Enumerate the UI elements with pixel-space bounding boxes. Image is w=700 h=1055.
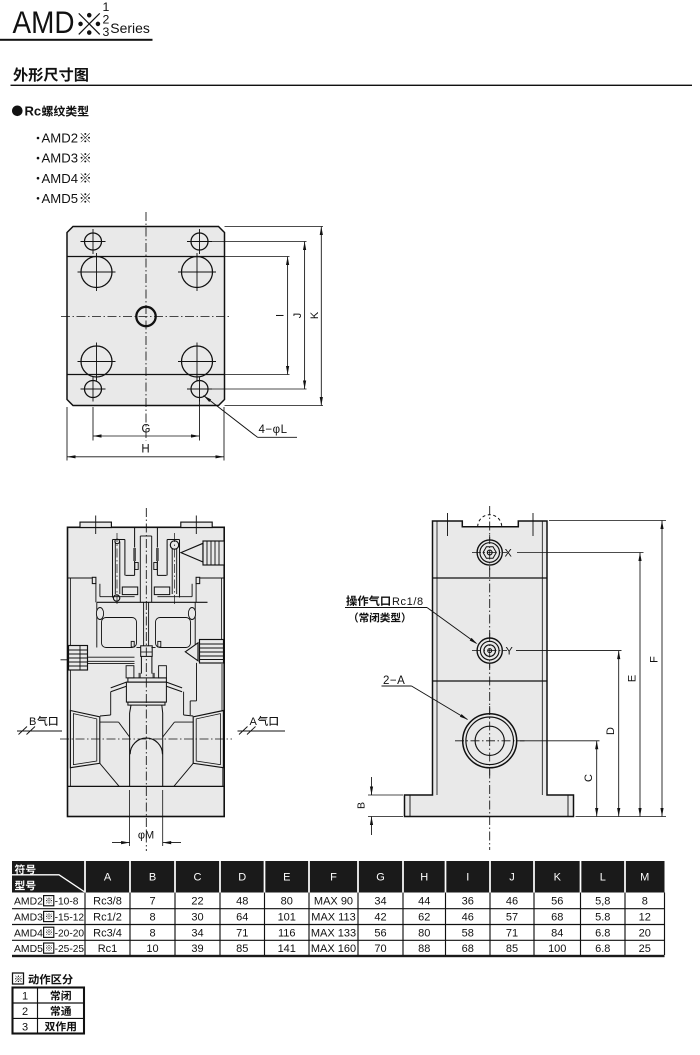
svg-text:B: B [149,872,156,884]
svg-text:36: 36 [462,896,474,908]
svg-text:5.8: 5.8 [595,912,610,924]
svg-text:E: E [283,872,290,884]
svg-text:AMD5: AMD5 [14,944,43,955]
svg-text:MAX 133: MAX 133 [311,927,356,939]
svg-text:MAX 160: MAX 160 [311,943,356,955]
svg-text:39: 39 [191,943,203,955]
svg-text:F: F [330,872,337,884]
svg-text:φM: φM [138,830,154,842]
svg-text:Rc: Rc [25,104,42,119]
svg-text:12: 12 [639,912,651,924]
svg-text:J: J [292,313,304,319]
svg-text:20: 20 [639,927,651,939]
svg-text:M: M [640,872,649,884]
svg-text:K: K [309,311,321,319]
svg-text:56: 56 [551,896,563,908]
svg-text:7: 7 [149,896,155,908]
svg-text:G: G [142,424,151,436]
svg-text:AMD5: AMD5 [42,191,79,206]
svg-text:Series: Series [110,21,150,36]
svg-text:Y: Y [506,646,514,658]
svg-text:Rc1/8: Rc1/8 [392,596,424,608]
svg-text:80: 80 [418,927,430,939]
svg-text:AMD3: AMD3 [14,913,43,924]
svg-text:68: 68 [462,943,474,955]
svg-text:X: X [505,548,513,560]
svg-text:84: 84 [551,927,563,939]
svg-text:56: 56 [374,927,386,939]
svg-text:AMD4: AMD4 [42,171,79,186]
svg-text:D: D [605,727,617,735]
svg-text:K: K [554,872,562,884]
svg-text:F: F [649,656,661,663]
svg-text:57: 57 [506,912,518,924]
svg-text:101: 101 [278,912,296,924]
svg-text:34: 34 [374,896,386,908]
svg-text:3: 3 [22,1021,28,1033]
svg-text:C: C [583,774,595,782]
svg-text:68: 68 [551,912,563,924]
svg-text:AMD3: AMD3 [42,151,79,166]
svg-text:H: H [420,872,428,884]
svg-text:34: 34 [191,927,203,939]
svg-text:80: 80 [281,896,293,908]
svg-text:AMD: AMD [13,4,75,40]
svg-text:88: 88 [418,943,430,955]
svg-text:D: D [238,872,246,884]
svg-text:48: 48 [236,896,248,908]
svg-text:64: 64 [236,912,248,924]
svg-text:MAX 90: MAX 90 [314,896,353,908]
svg-text:Rc3/8: Rc3/8 [93,896,122,908]
svg-text:2−A: 2−A [383,675,405,687]
svg-text:8: 8 [642,896,648,908]
svg-text:H: H [141,444,149,456]
svg-text:Rc1: Rc1 [98,943,118,955]
svg-text:A: A [104,872,112,884]
svg-text:-25-25: -25-25 [55,944,85,955]
svg-text:25: 25 [639,943,651,955]
svg-text:L: L [600,872,606,884]
svg-text:10: 10 [146,943,158,955]
svg-text:3: 3 [103,25,110,39]
svg-text:116: 116 [278,927,296,939]
svg-text:2: 2 [22,1006,28,1018]
svg-text:E: E [627,675,639,682]
svg-text:30: 30 [191,912,203,924]
svg-text:62: 62 [418,912,430,924]
svg-text:A: A [250,716,258,728]
svg-text:100: 100 [548,943,566,955]
svg-text:C: C [194,872,202,884]
svg-text:8: 8 [149,927,155,939]
svg-text:8: 8 [149,912,155,924]
svg-text:MAX 113: MAX 113 [311,912,355,924]
svg-text:I: I [275,314,287,317]
svg-text:85: 85 [236,943,248,955]
svg-text:-10-8: -10-8 [55,897,79,908]
svg-text:B: B [356,802,368,809]
svg-text:-20-20: -20-20 [55,928,85,939]
svg-text:1: 1 [22,991,28,1003]
svg-text:I: I [466,872,469,884]
svg-text:AMD2: AMD2 [42,131,79,146]
svg-text:AMD4: AMD4 [14,928,43,939]
svg-text:71: 71 [506,927,518,939]
svg-text:5,8: 5,8 [595,896,610,908]
svg-text:J: J [509,872,515,884]
svg-text:58: 58 [462,927,474,939]
svg-text:G: G [376,872,385,884]
svg-text:44: 44 [418,896,430,908]
svg-text:6.8: 6.8 [595,943,610,955]
svg-text:4−φL: 4−φL [259,424,288,436]
svg-text:-15-12: -15-12 [55,913,85,924]
svg-text:Rc3/4: Rc3/4 [93,927,122,939]
svg-text:70: 70 [374,943,386,955]
svg-text:71: 71 [236,927,248,939]
svg-text:46: 46 [506,896,518,908]
svg-text:B: B [29,716,36,728]
svg-text:141: 141 [278,943,296,955]
svg-text:AMD2: AMD2 [14,897,43,908]
svg-text:85: 85 [506,943,518,955]
svg-text:42: 42 [374,912,386,924]
svg-text:6.8: 6.8 [595,927,610,939]
svg-text:22: 22 [191,896,203,908]
svg-text:46: 46 [462,912,474,924]
svg-text:Rc1/2: Rc1/2 [93,912,122,924]
